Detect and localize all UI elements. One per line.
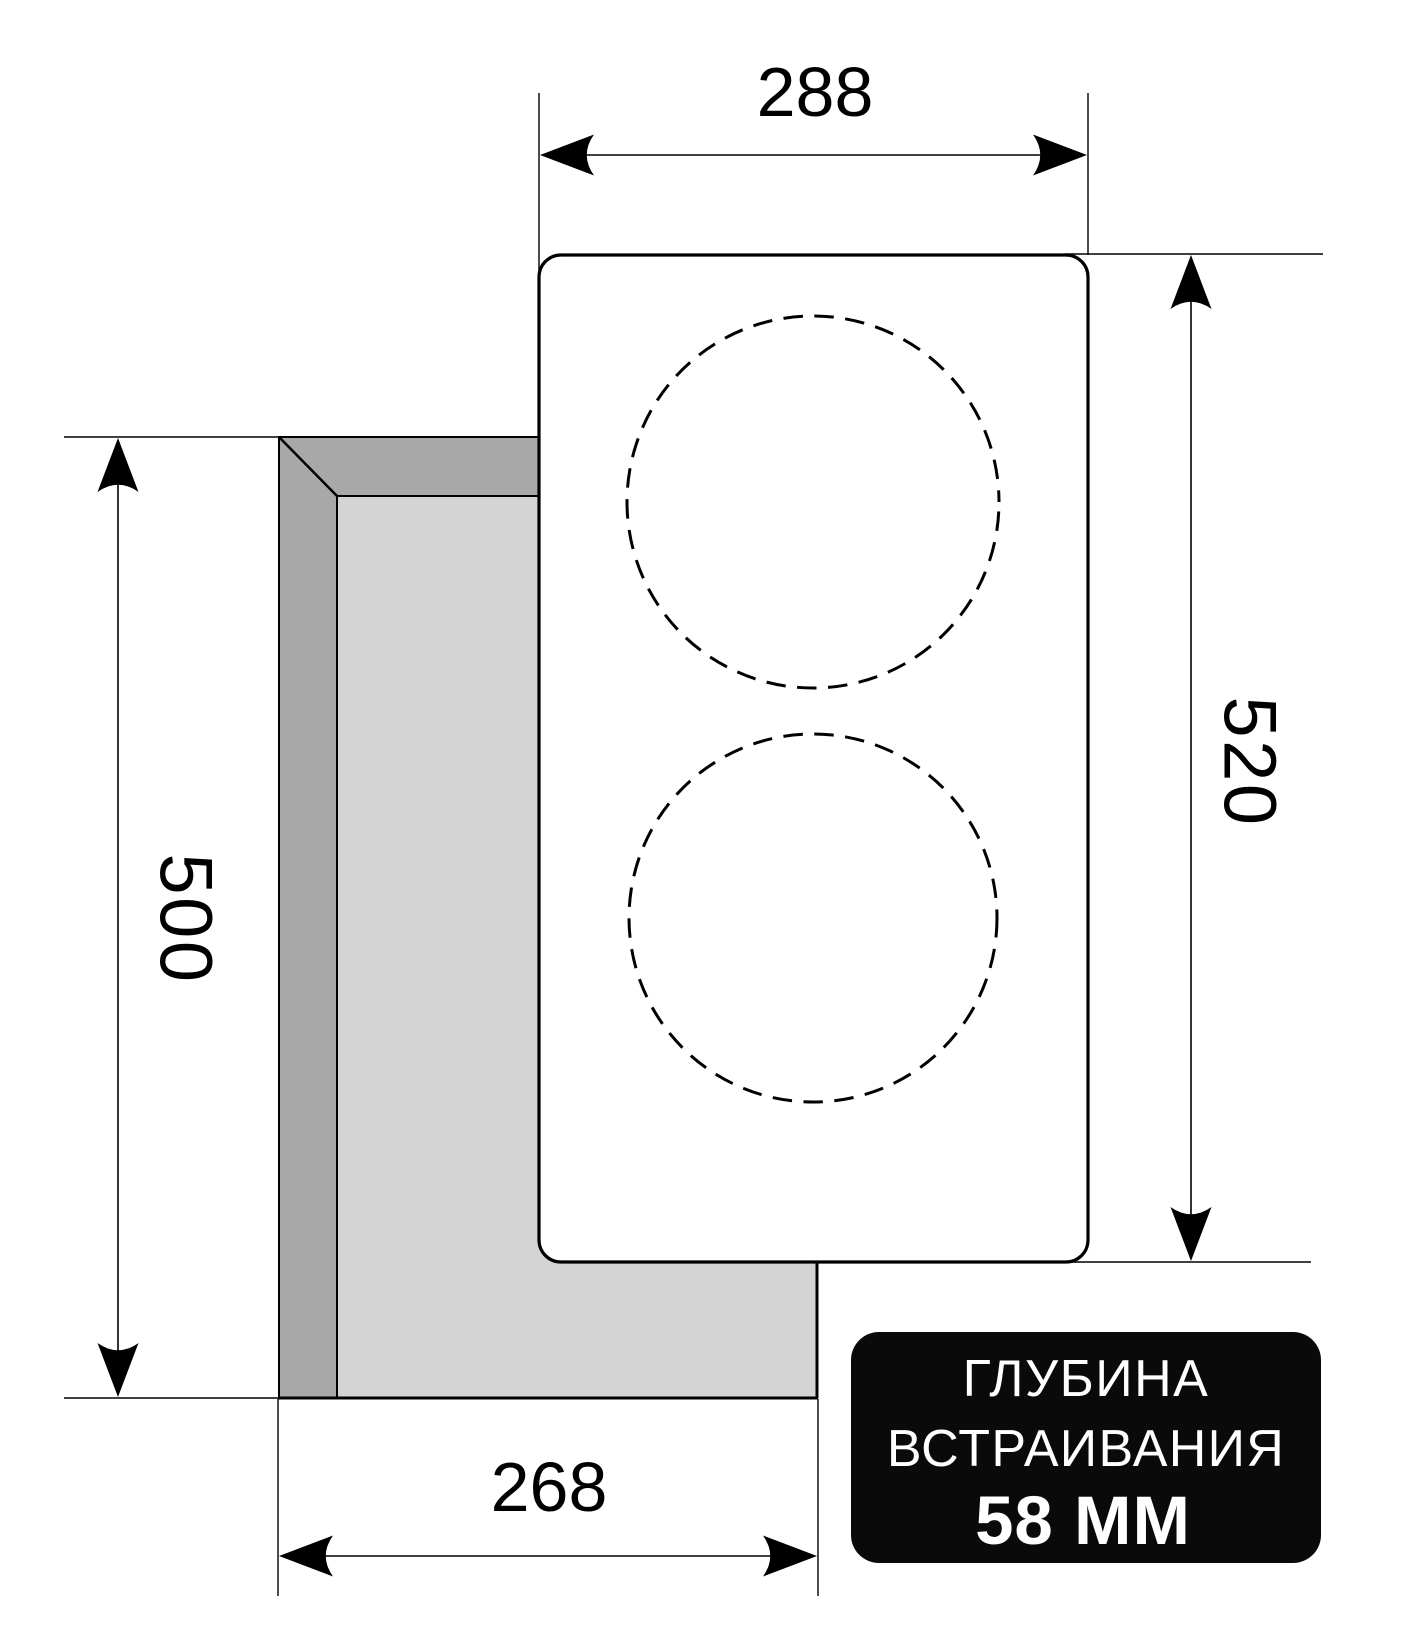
- svg-text:500: 500: [145, 854, 228, 985]
- svg-text:520: 520: [1209, 697, 1292, 828]
- svg-text:ГЛУБИНА: ГЛУБИНА: [963, 1350, 1210, 1408]
- svg-text:ВСТРАИВАНИЯ: ВСТРАИВАНИЯ: [887, 1420, 1285, 1478]
- svg-text:58 ММ: 58 ММ: [975, 1482, 1191, 1559]
- svg-text:288: 288: [757, 53, 874, 131]
- svg-text:268: 268: [491, 1448, 608, 1526]
